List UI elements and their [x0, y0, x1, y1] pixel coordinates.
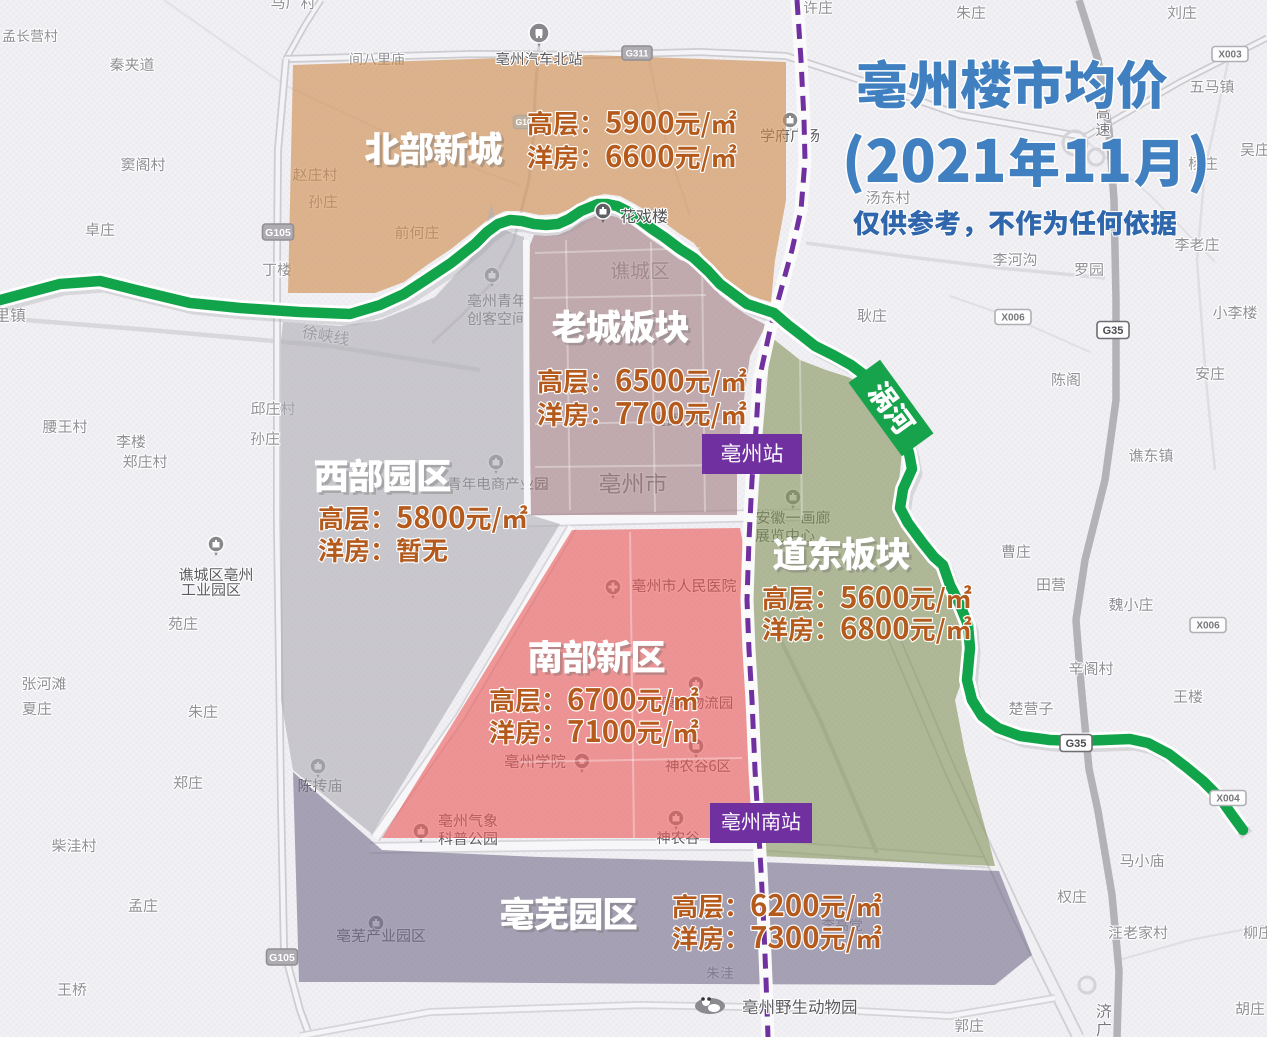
- svg-text:G105: G105: [265, 227, 291, 239]
- svg-text:G35: G35: [1103, 325, 1124, 337]
- svg-text:G105: G105: [269, 952, 295, 964]
- svg-text:G35: G35: [1066, 738, 1087, 750]
- svg-text:G311: G311: [626, 48, 649, 59]
- svg-text:X004: X004: [1216, 794, 1240, 805]
- svg-text:X006: X006: [1001, 313, 1025, 324]
- svg-text:X003: X003: [1218, 50, 1242, 61]
- svg-text:X006: X006: [1196, 621, 1220, 632]
